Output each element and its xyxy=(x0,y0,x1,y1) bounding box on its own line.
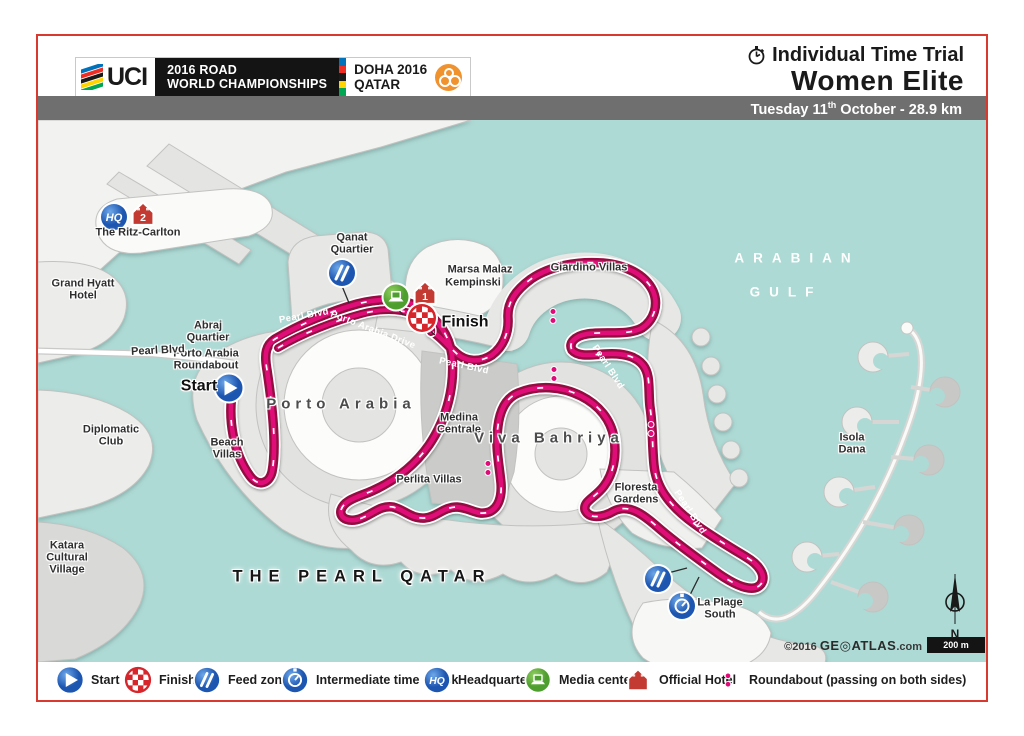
map-label: Kempinski xyxy=(445,278,501,289)
legend-item-rb: Roundabout (passing on both sides) xyxy=(713,665,966,695)
course-map: HQ21 The Ritz-CarltonGrand HyattHotelQan… xyxy=(38,120,986,662)
legend-item-media: Media center xyxy=(523,665,635,695)
champ-line2: WORLD CHAMPIONSHIPS xyxy=(167,77,327,91)
poster-page: UCI 2016 ROAD WORLD CHAMPIONSHIPS DOHA 2… xyxy=(0,0,1024,736)
compass-rose: N xyxy=(935,572,975,649)
geoatlas-logo: GE◎ATLAS xyxy=(820,638,897,653)
map-label: Medina xyxy=(440,413,478,424)
legend-label: Finish xyxy=(159,673,196,687)
map-label: Club xyxy=(99,437,123,448)
media-icon xyxy=(523,665,553,695)
map-label: THE PEARL QATAR xyxy=(232,572,491,583)
map-label: Isola xyxy=(839,433,864,444)
rb-icon xyxy=(713,665,743,695)
hq-icon: HQ xyxy=(422,665,452,695)
stopwatch-icon xyxy=(748,46,765,65)
doha-line1: DOHA 2016 xyxy=(354,62,427,77)
map-label: Cultural xyxy=(46,553,88,564)
map-label: Beach xyxy=(210,438,243,449)
doha-label: DOHA 2016 QATAR xyxy=(354,62,427,92)
legend-item-hq: HQHeadquarters xyxy=(422,665,539,695)
map-label: Gardens xyxy=(614,495,659,506)
legend-bar: StartFinishFeed zoneIntermediate time ch… xyxy=(38,662,986,698)
legend-item-start: Start xyxy=(55,665,119,695)
map-label: Perlita Villas xyxy=(396,475,461,486)
map-label: Quartier xyxy=(187,333,230,344)
map-label: ARABIAN xyxy=(734,253,859,264)
date-bar: Tuesday 11th October - 28.9 km xyxy=(38,96,986,120)
uci-wordmark: UCI xyxy=(107,63,147,92)
map-label: Floresta xyxy=(615,483,658,494)
doha-logo: DOHA 2016 QATAR xyxy=(346,58,470,96)
credits-tld: .com xyxy=(896,641,922,653)
doha-line2: QATAR xyxy=(354,77,400,92)
map-label: Katara xyxy=(50,541,84,552)
legend-label: Start xyxy=(91,673,119,687)
map-label: Finish xyxy=(441,317,488,328)
route-road-label: Pearl Blvd xyxy=(590,343,627,391)
header: UCI 2016 ROAD WORLD CHAMPIONSHIPS DOHA 2… xyxy=(38,36,986,96)
legend-label: Roundabout (passing on both sides) xyxy=(749,673,966,687)
map-label: Roundabout xyxy=(174,361,239,372)
map-label: South xyxy=(704,610,735,621)
map-label: Giardino Villas xyxy=(551,263,628,274)
event-title-line2: Women Elite xyxy=(748,65,964,97)
route-road-label: Pearl Blvd xyxy=(438,355,490,376)
map-label: Diplomatic xyxy=(83,425,139,436)
map-label: Qanat xyxy=(336,233,367,244)
timecheck-icon xyxy=(280,665,310,695)
map-label: Quartier xyxy=(331,245,374,256)
route-road-label: Pearl Blvd xyxy=(672,488,709,536)
map-label: Porto Arabia xyxy=(266,399,415,410)
map-label: GULF xyxy=(750,287,823,298)
map-label: Marsa Malaz xyxy=(448,265,513,276)
logo-strip: UCI 2016 ROAD WORLD CHAMPIONSHIPS DOHA 2… xyxy=(75,57,471,97)
map-label: Village xyxy=(49,565,84,576)
event-title-line1: Individual Time Trial xyxy=(748,44,964,67)
svg-text:HQ: HQ xyxy=(429,676,444,687)
hotel-icon xyxy=(623,665,653,695)
map-labels-layer: The Ritz-CarltonGrand HyattHotelQanatQua… xyxy=(38,120,986,662)
map-label: Viva Bahriya xyxy=(474,433,624,444)
uci-logo: UCI xyxy=(76,58,155,96)
uci-rainbow-icon xyxy=(81,64,103,90)
championships-label: 2016 ROAD WORLD CHAMPIONSHIPS xyxy=(155,58,339,96)
route-road-label: Pearl Blvd xyxy=(278,306,330,326)
map-label: Villas xyxy=(213,450,242,461)
event-title: Individual Time Trial Women Elite xyxy=(748,44,964,97)
start-icon xyxy=(55,665,85,695)
map-label: The Ritz-Carlton xyxy=(96,228,181,239)
map-label: Start xyxy=(181,381,217,392)
champ-line1: 2016 ROAD xyxy=(167,63,327,77)
legend-item-feed: Feed zone xyxy=(192,665,289,695)
doha-emblem-icon xyxy=(435,64,462,91)
map-label: Grand Hyatt xyxy=(52,279,115,290)
feed-icon xyxy=(192,665,222,695)
route-road-label: Porto Arabia Drive xyxy=(329,309,417,352)
map-label: La Plage xyxy=(697,598,742,609)
rainbow-separator-icon xyxy=(339,58,346,96)
svg-text:N: N xyxy=(951,627,960,641)
map-label: Hotel xyxy=(69,291,97,302)
finish-icon xyxy=(123,665,153,695)
date-text: Tuesday 11th October - 28.9 km xyxy=(751,100,962,118)
credits-year: ©2016 xyxy=(784,641,817,653)
map-label: Dana xyxy=(839,445,866,456)
map-credits: ©2016 GE◎ATLAS.com xyxy=(784,638,922,654)
legend-item-finish: Finish xyxy=(123,665,196,695)
map-label: Abraj xyxy=(194,321,222,332)
